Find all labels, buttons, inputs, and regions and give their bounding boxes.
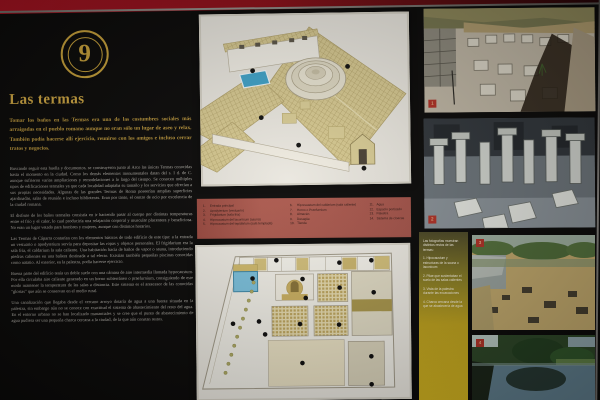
photo-4-image <box>472 335 595 400</box>
body-paragraphs: Buscando seguir esta huella y documentos… <box>10 164 194 324</box>
paragraph: El disfrute de los baños termales consis… <box>10 211 192 231</box>
photo-number-badge: 4 <box>476 339 484 347</box>
photo-pilae-pillars: 2 <box>424 117 596 228</box>
diagram-legend: 1.Entrada principal2.Apodyterium (vestua… <box>197 197 411 239</box>
photo-number-badge: 2 <box>428 216 436 224</box>
photo-caption: Las fotografías muestran distintos resto… <box>423 239 464 252</box>
photo-3-image <box>472 235 595 330</box>
photo-2-image <box>424 117 596 228</box>
photo-caption: 3. Vista de la palestra durante las exca… <box>423 287 464 296</box>
legend-column-3: 11.Agua12.Espacio porticado13.Palestra14… <box>369 202 405 232</box>
photo-1-image <box>424 7 596 112</box>
isometric-reconstruction-diagram <box>199 12 411 187</box>
photo-caption: 1. Hipocaustum y estructuras de la sauna… <box>423 256 464 269</box>
photo-palestra-excavation: 3 <box>472 235 595 330</box>
photo-caption: 2. Pilae que sustentaban el suelo de las… <box>423 274 464 283</box>
paragraph: Una canalización que llegaba desde el ce… <box>11 298 193 324</box>
photo-caption: 4. Charca cercana desde la que se abaste… <box>423 300 464 309</box>
paragraph: Las Termas de Cáparra contarían con los … <box>11 234 193 266</box>
legend-column-1: 1.Entrada principal2.Apodyterium (vestua… <box>203 203 285 234</box>
baths-floor-plan <box>195 243 412 400</box>
floor-plan-diagram <box>195 243 412 400</box>
panel-number-medallion: 9 <box>60 30 109 79</box>
intro-paragraph: Tomar los baños en las Termas era una de… <box>9 115 191 155</box>
page-title: Las termas <box>9 90 191 109</box>
legend-item: 5.Hipocaustum del tepidarium (sala templ… <box>203 222 285 227</box>
legend-item: 10.Tienda <box>290 221 365 226</box>
legend-column-2: 6.Hipocaustum del caldarium (sala calien… <box>290 202 365 233</box>
exhibit-panel-photo: 9 Las termas Tomar los baños en las Term… <box>0 0 600 400</box>
panel-number: 9 <box>67 36 102 71</box>
baths-isometric-drawing <box>199 12 411 187</box>
text-column: 9 Las termas Tomar los baños en las Term… <box>8 25 193 329</box>
panel-right-edge <box>595 0 600 400</box>
paragraph: Buscando seguir esta huella y documentos… <box>10 164 192 208</box>
photo-water-pond: 4 <box>472 335 595 400</box>
photo-captions-box: Las fotografías muestran distintos resto… <box>419 232 468 400</box>
legend-item: 14.Sistema de cloacas <box>370 216 405 221</box>
photo-hypocaust-remains: 1 <box>424 7 596 112</box>
paragraph: Buena parte del edificio tenía un doble … <box>11 269 193 295</box>
photo-number-badge: 3 <box>476 239 484 247</box>
photo-caption-list: Las fotografías muestran distintos resto… <box>423 239 464 309</box>
photo-number-badge: 1 <box>428 100 436 108</box>
